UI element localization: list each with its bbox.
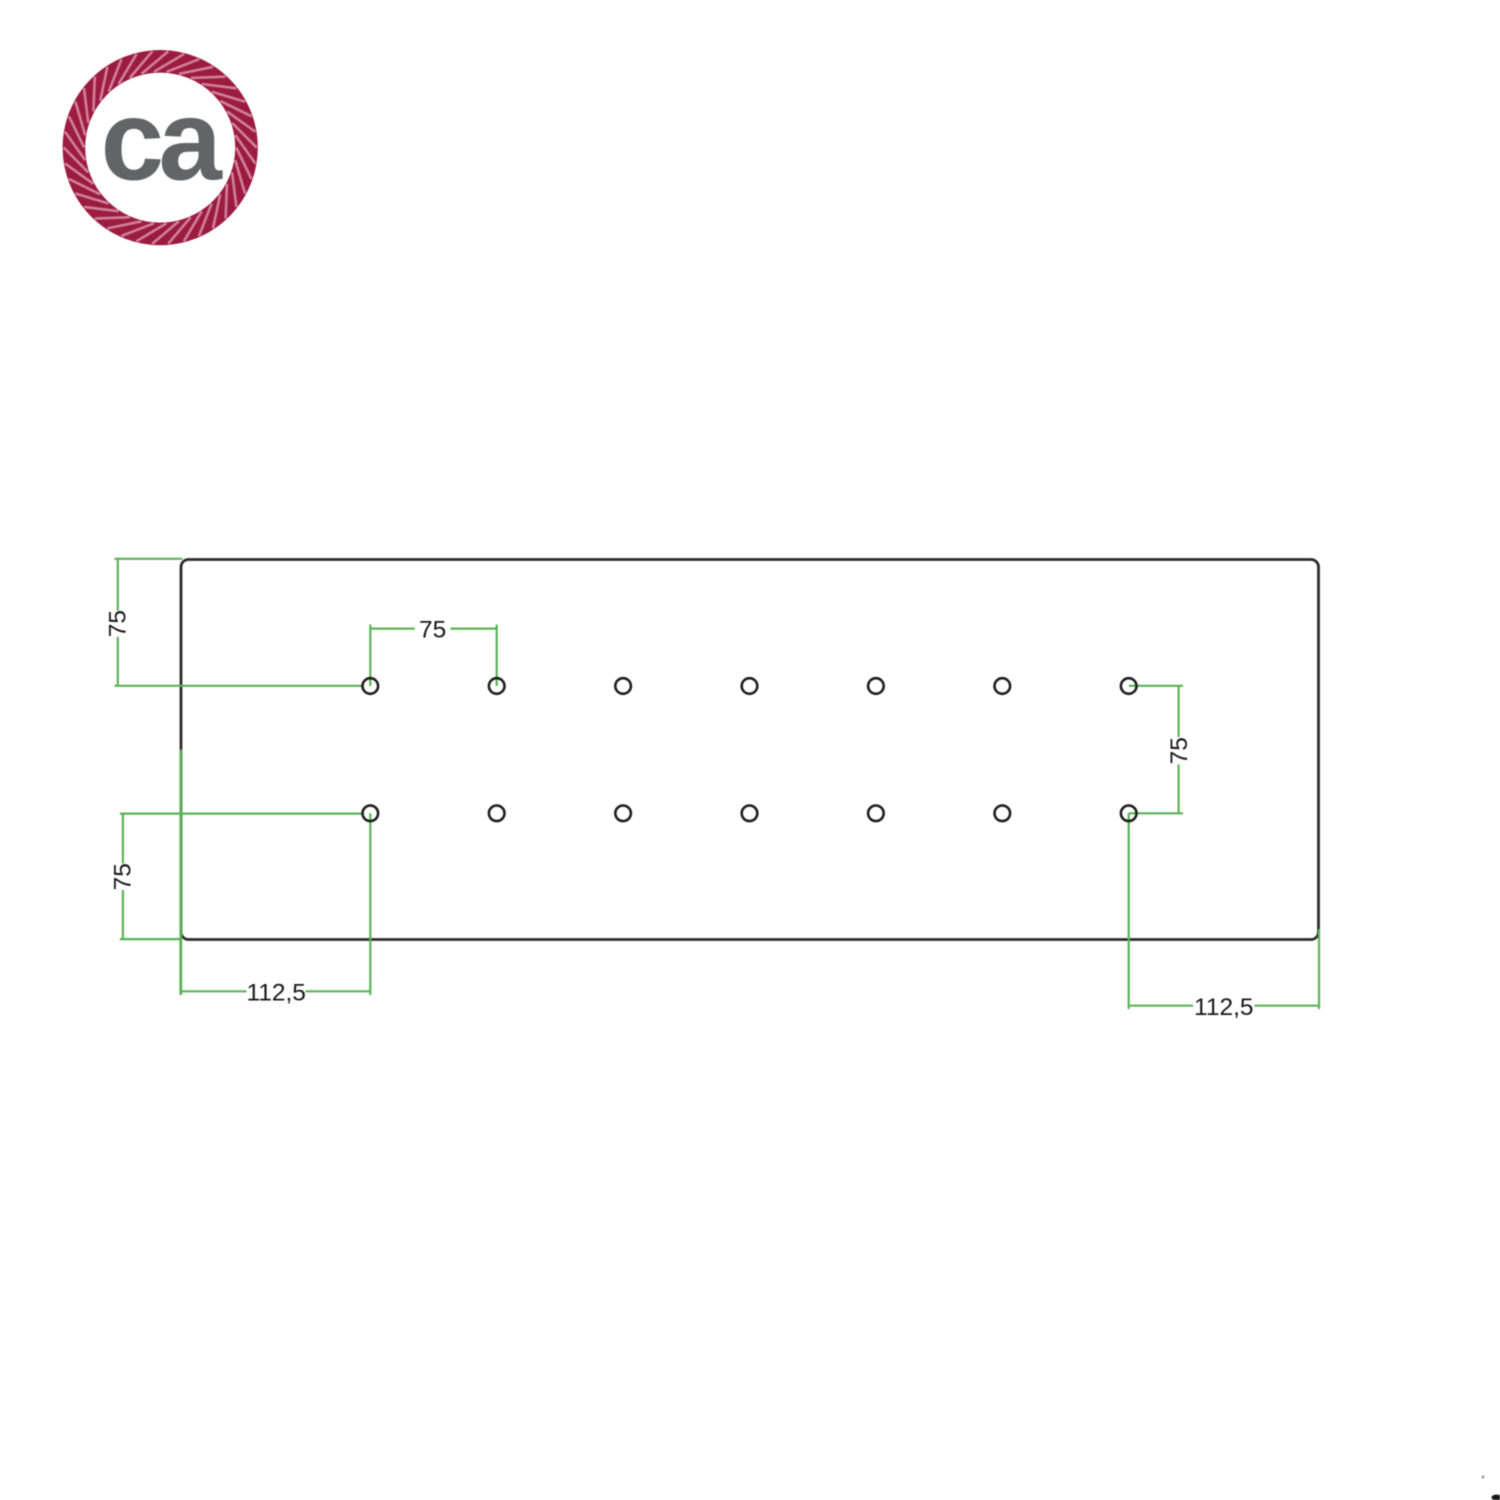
svg-text:75: 75: [419, 617, 446, 644]
svg-text:75: 75: [109, 863, 136, 890]
svg-text:112,5: 112,5: [1194, 994, 1254, 1021]
svg-text:112,5: 112,5: [246, 979, 306, 1006]
svg-text:75: 75: [105, 610, 132, 637]
svg-text:ca: ca: [101, 77, 224, 204]
svg-text:75: 75: [1166, 737, 1193, 764]
